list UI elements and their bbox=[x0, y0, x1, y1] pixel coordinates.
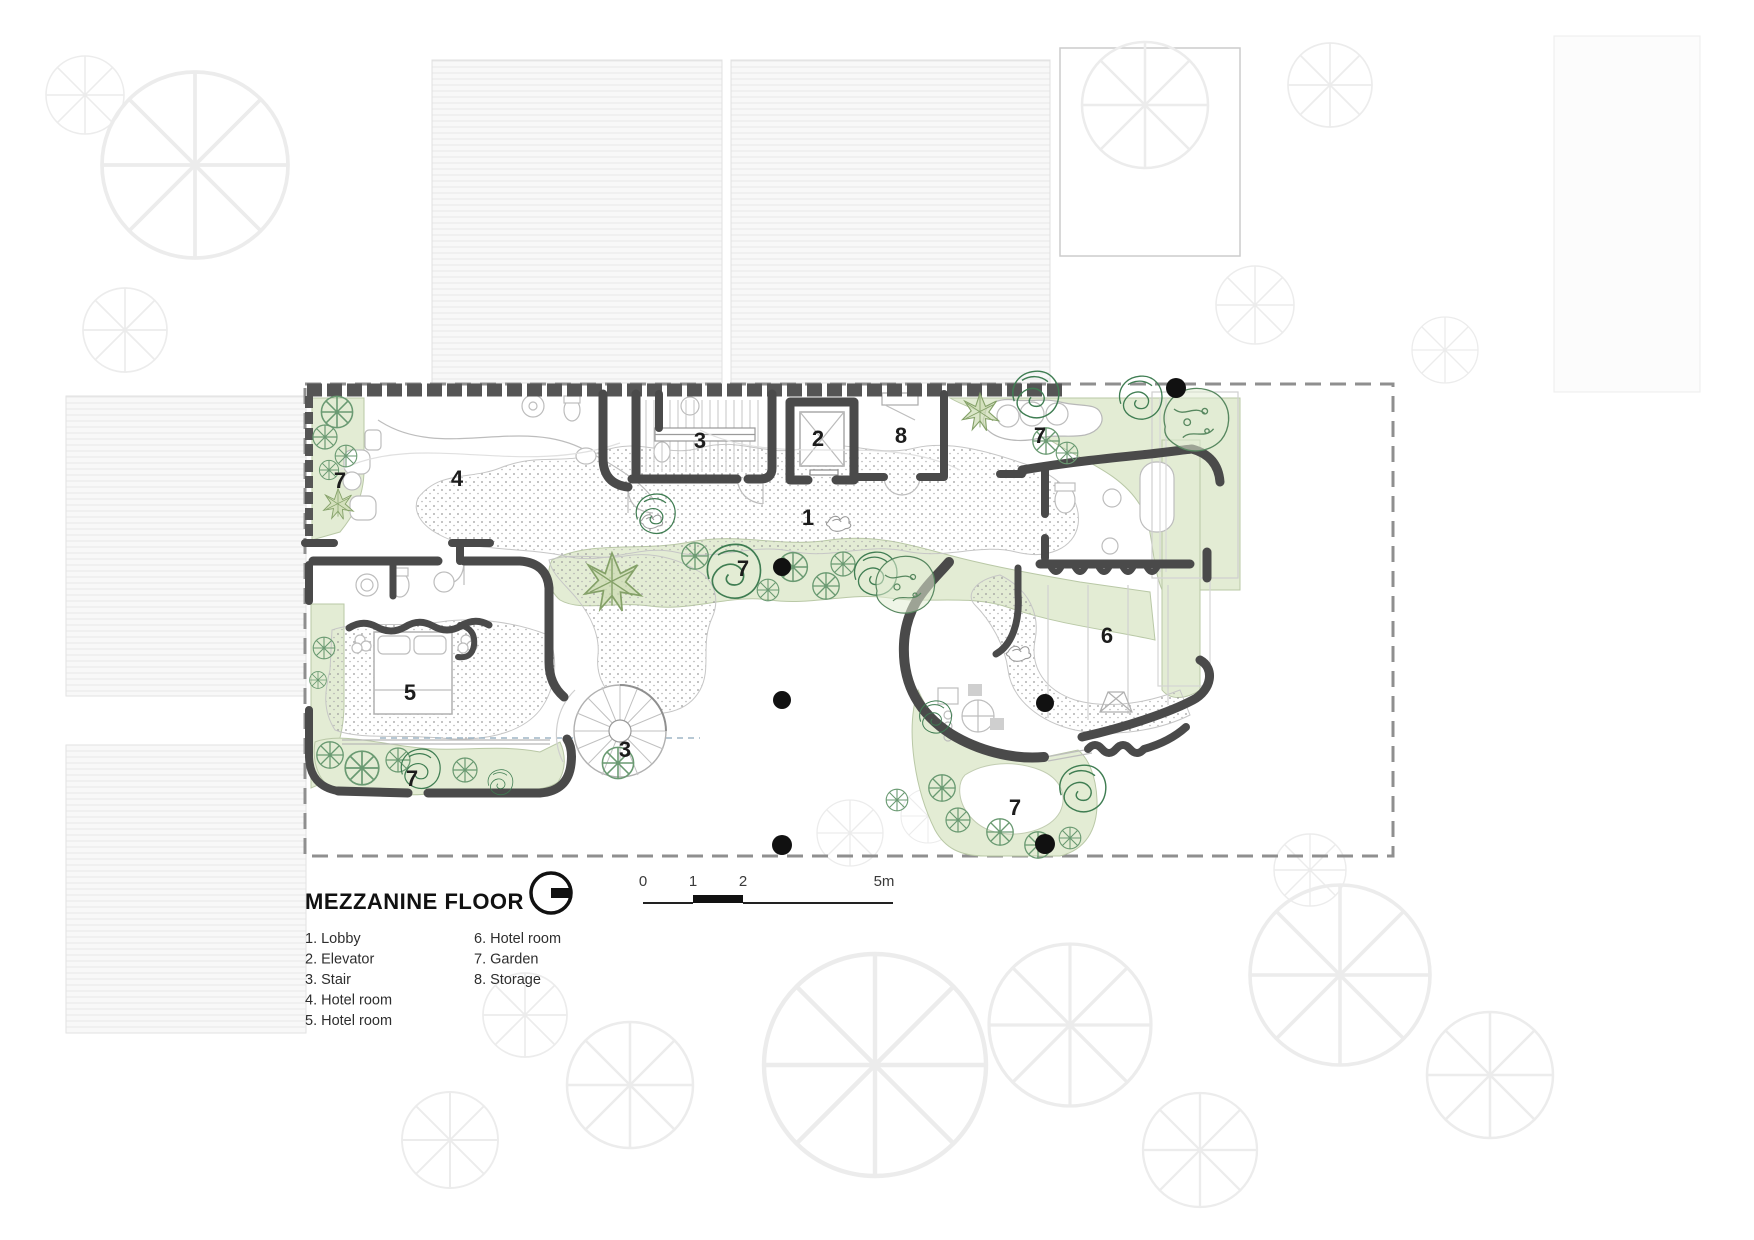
legend-item-hotel-room-4: 4. Hotel room bbox=[305, 993, 392, 1009]
room-label-garden: 7 bbox=[406, 766, 418, 791]
north-arrow-icon bbox=[531, 873, 571, 913]
tree-icon bbox=[317, 742, 343, 768]
tree-icon bbox=[831, 552, 855, 576]
column-dot bbox=[772, 835, 792, 855]
tree-icon bbox=[987, 819, 1013, 845]
legend-item-hotel-room-5: 5. Hotel room bbox=[305, 1013, 392, 1029]
column-dot bbox=[773, 691, 791, 709]
room-label-storage: 8 bbox=[895, 423, 907, 448]
page-title: MEZZANINE FLOOR bbox=[305, 889, 524, 914]
room-label-stair: 3 bbox=[619, 737, 631, 762]
room-label-garden: 7 bbox=[1009, 795, 1021, 820]
site-surroundings bbox=[46, 36, 1700, 1207]
room-label-garden: 7 bbox=[737, 556, 749, 581]
scale-tick-2: 2 bbox=[739, 873, 747, 890]
tree-icon bbox=[813, 573, 839, 599]
tree-icon bbox=[1056, 442, 1078, 464]
column-dot bbox=[1036, 694, 1054, 712]
floor-plan-sheet: 7 4 3 2 8 7 1 7 6 5 3 7 7 MEZZANINE FLOO… bbox=[0, 0, 1754, 1240]
tree-icon bbox=[313, 425, 337, 449]
legend-item-storage: 8. Storage bbox=[474, 972, 541, 988]
room-label-elevator: 2 bbox=[812, 426, 824, 451]
tree-icon bbox=[757, 579, 779, 601]
room-label-lobby: 1 bbox=[802, 505, 814, 530]
floor-plan-drawing: 7 4 3 2 8 7 1 7 6 5 3 7 7 MEZZANINE FLOO… bbox=[0, 0, 1754, 1240]
tree-icon bbox=[313, 637, 335, 659]
legend-item-hotel-room-6: 6. Hotel room bbox=[474, 931, 561, 947]
tree-icon bbox=[453, 758, 477, 782]
scale-bar: 0 1 2 5m bbox=[639, 873, 895, 903]
column-dot bbox=[1035, 834, 1055, 854]
room-label-stair: 3 bbox=[694, 428, 706, 453]
tree-icon bbox=[1164, 388, 1229, 450]
tree-icon bbox=[335, 445, 357, 467]
room-label-hotel-room: 4 bbox=[451, 466, 464, 491]
tree-icon bbox=[946, 808, 970, 832]
legend-item-garden: 7. Garden bbox=[474, 952, 539, 968]
neighbor-roof bbox=[66, 745, 306, 1033]
room-label-hotel-room: 5 bbox=[404, 680, 416, 705]
scale-tick-0: 0 bbox=[639, 873, 647, 890]
tree-icon bbox=[886, 789, 908, 811]
tree-icon bbox=[929, 775, 955, 801]
neighbor-roof bbox=[432, 60, 722, 383]
neighbor-roof bbox=[66, 396, 306, 696]
garden-area bbox=[314, 738, 564, 795]
legend-item-lobby: 1. Lobby bbox=[305, 931, 361, 947]
tree-icon bbox=[345, 751, 379, 785]
tree-icon bbox=[310, 672, 327, 689]
tree-icon bbox=[682, 543, 708, 569]
path-area bbox=[416, 444, 1078, 558]
tree-icon bbox=[1059, 827, 1081, 849]
room-label-garden: 7 bbox=[1034, 423, 1046, 448]
column-dot bbox=[773, 558, 791, 576]
column-dot bbox=[1166, 378, 1186, 398]
room-label-hotel-room: 6 bbox=[1101, 623, 1113, 648]
neighbor-building bbox=[1554, 36, 1700, 392]
tree-icon bbox=[876, 556, 935, 613]
neighbor-roof bbox=[731, 60, 1050, 383]
scale-tick-1: 1 bbox=[689, 873, 697, 890]
tree-icon bbox=[321, 396, 352, 427]
room-label-garden: 7 bbox=[334, 468, 346, 493]
scale-end-label: 5m bbox=[874, 873, 895, 890]
legend-item-elevator: 2. Elevator bbox=[305, 952, 374, 968]
legend-item-stair: 3. Stair bbox=[305, 972, 351, 988]
